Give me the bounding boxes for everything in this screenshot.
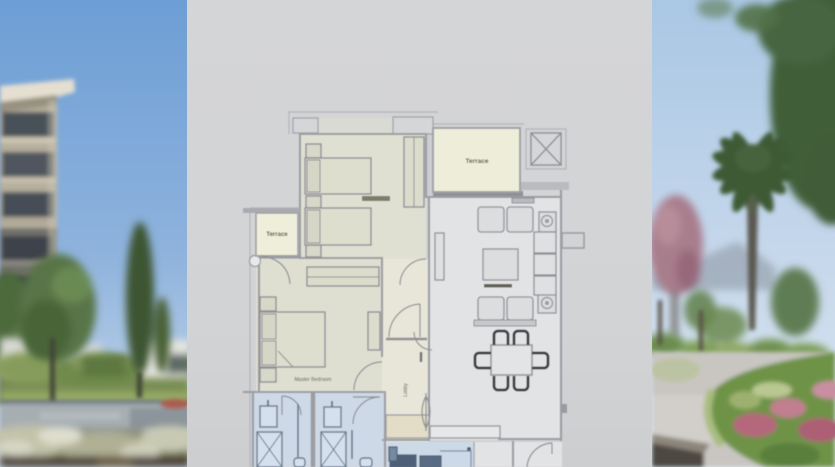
- svg-text:Terrace: Terrace: [266, 232, 288, 238]
- svg-text:Terrace: Terrace: [465, 158, 488, 165]
- svg-text:Lobby: Lobby: [403, 383, 409, 397]
- svg-text:Master Bedroom: Master Bedroom: [295, 377, 332, 383]
